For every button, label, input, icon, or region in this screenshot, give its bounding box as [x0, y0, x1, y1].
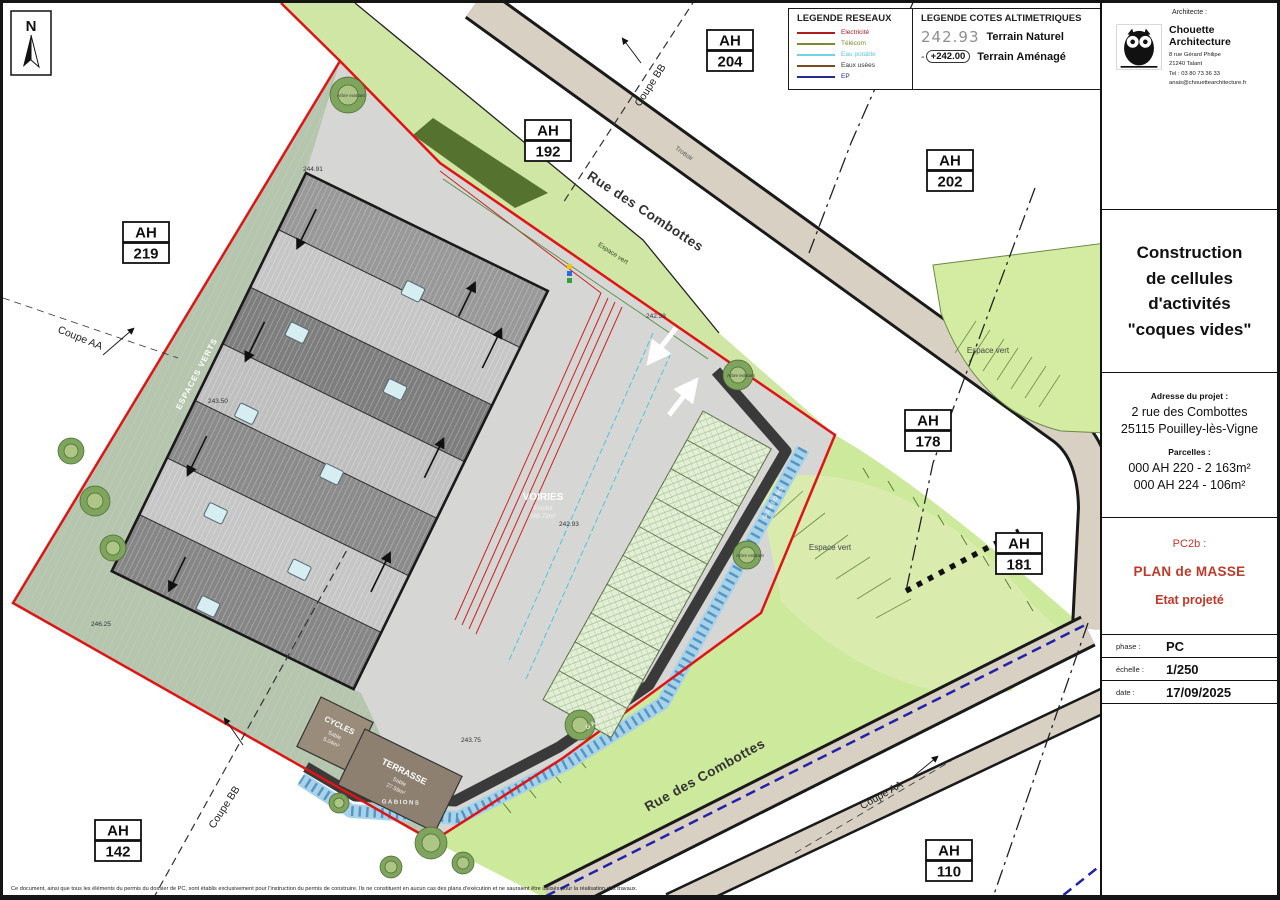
date-value: 17/09/2025 [1166, 685, 1231, 700]
arbre-label: Arbre existant [736, 553, 765, 558]
svg-text:181: 181 [1006, 557, 1031, 574]
parcel-label-ah110: AH 110 [926, 840, 972, 881]
electricite-label: Electricité [841, 29, 869, 36]
terrain-amenage-value: +242.00 [926, 50, 971, 63]
terrain-amenage-row: - +242.00 Terrain Aménagé [921, 50, 1095, 63]
project-title-line1: Construction [1128, 240, 1252, 266]
parcel1: 000 AH 220 - 2 163m² [1102, 460, 1277, 477]
project-title-line3: d'activités [1128, 291, 1252, 317]
terrain-naturel-value: 242.93 [921, 28, 980, 46]
arbre-label: Arbre existant [337, 93, 366, 98]
svg-text:219: 219 [133, 246, 158, 263]
service-connection-marks [567, 264, 572, 283]
svg-text:192: 192 [535, 144, 560, 161]
elevation-value: 243.75 [461, 737, 481, 744]
drawing-sheet: CYCLES Sable 5.04m² TERRASSE Sable 27.59… [0, 0, 1280, 900]
terrain-amenage-badge: - +242.00 [921, 50, 970, 63]
parcel-label-ah219: AH 219 [123, 222, 169, 263]
document-block: PC2b : PLAN de MASSE Etat projeté [1102, 518, 1277, 635]
ep-line-swatch [797, 76, 835, 78]
scale-row: échelle : 1/250 [1102, 658, 1277, 681]
terrain-naturel-label: Terrain Naturel [987, 31, 1064, 43]
parcels-heading: Parcelles : [1102, 447, 1277, 457]
elevation-value: 242.93 [559, 521, 579, 528]
svg-text:AH: AH [917, 413, 939, 430]
doc-title: PLAN de MASSE [1102, 564, 1277, 579]
architect-name: Chouette Architecture [1169, 24, 1269, 48]
date-label: date : [1102, 688, 1166, 697]
address-heading: Adresse du projet : [1102, 391, 1277, 401]
phase-label: phase : [1102, 642, 1166, 651]
eaux-usees-line-swatch [797, 65, 835, 67]
parcel-label-ah178: AH 178 [905, 410, 951, 451]
legend-row-telecom: Télécom [797, 38, 904, 49]
voiries-area-value: 585.72m² [530, 514, 555, 520]
architect-heading: Architecte : [1110, 9, 1269, 16]
svg-text:AH: AH [135, 225, 157, 242]
svg-text:AH: AH [719, 33, 741, 50]
title-block-empty [1102, 704, 1277, 895]
eaux-usees-label: Eaux usées [841, 62, 875, 69]
svg-text:178: 178 [915, 434, 940, 451]
architect-address2: 21240 Talant [1169, 60, 1269, 69]
svg-text:AH: AH [1008, 536, 1030, 553]
svg-text:110: 110 [937, 864, 961, 881]
parcel-label-ah204: AH 204 [707, 30, 753, 71]
electricite-line-swatch [797, 32, 835, 34]
project-title-line2: de cellules [1128, 266, 1252, 292]
svg-text:204: 204 [717, 54, 743, 71]
architect-phone: Tel : 03 80 73 36 33 [1169, 70, 1269, 79]
voiries-material: Enrobé [533, 506, 553, 512]
project-title: Construction de cellules d'activités "co… [1128, 240, 1252, 342]
project-address-block: Adresse du projet : 2 rue des Combottes … [1102, 373, 1277, 518]
project-address2: 25115 Pouilley-lès-Vigne [1102, 421, 1277, 438]
eau-potable-line-swatch [797, 54, 835, 56]
architect-email: anais@chouettearchitecture.fr [1169, 79, 1269, 88]
scale-label: échelle : [1102, 665, 1166, 674]
north-arrow: N [11, 11, 51, 75]
legend-row-electricite: Electricité [797, 27, 904, 38]
north-label: N [26, 18, 37, 35]
arbre-label: Arbre existant [727, 373, 756, 378]
parcel-label-ah202: AH 202 [927, 150, 973, 191]
telecom-line-swatch [797, 43, 835, 45]
espace-vert-label: Espace vert [809, 543, 852, 552]
ep-label: EP [841, 73, 850, 80]
phase-row: phase : PC [1102, 635, 1277, 658]
phase-value: PC [1166, 639, 1184, 654]
svg-text:142: 142 [105, 844, 130, 861]
parcel-label-ah142: AH 142 [95, 820, 141, 861]
legend-elevations-title: LEGENDE COTES ALTIMETRIQUES [921, 13, 1095, 24]
parcel2: 000 AH 224 - 106m² [1102, 477, 1277, 494]
svg-text:AH: AH [537, 123, 559, 140]
terrain-amenage-label: Terrain Aménagé [977, 51, 1066, 63]
footer-disclaimer: Ce document, ainsi que tous les éléments… [11, 886, 637, 892]
title-block: Architecte : Chouette Architecture 8 rue… [1100, 3, 1277, 895]
legend-elevations: LEGENDE COTES ALTIMETRIQUES 242.93 Terra… [912, 8, 1104, 90]
legend-networks-title: LEGENDE RESEAUX [797, 13, 904, 24]
legend-row-eaux-usees: Eaux usées [797, 60, 904, 71]
espace-vert-label: Espace vert [967, 346, 1010, 355]
legend-row-ep: EP [797, 71, 904, 82]
architect-address1: 8 rue Gérard Philipe [1169, 51, 1269, 60]
elevation-value: 242.38 [646, 313, 666, 320]
site-plan-drawing: CYCLES Sable 5.04m² TERRASSE Sable 27.59… [3, 3, 1106, 897]
parcel-label-ah192: AH 192 [525, 120, 571, 161]
telecom-label: Télécom [841, 40, 866, 47]
svg-text:AH: AH [107, 823, 129, 840]
terrain-naturel-row: 242.93 Terrain Naturel [921, 28, 1095, 46]
architect-block: Architecte : Chouette Architecture 8 rue… [1102, 3, 1277, 210]
voiries-label: VOIRIES [523, 492, 564, 503]
elevation-value: 244.91 [303, 166, 323, 173]
svg-text:AH: AH [938, 843, 960, 860]
elevation-value: 246.25 [91, 621, 111, 628]
parcel-label-ah181: AH 181 [996, 533, 1042, 574]
badge-leader: - [921, 51, 925, 63]
owl-logo [1116, 24, 1162, 70]
project-address1: 2 rue des Combottes [1102, 404, 1277, 421]
legend-row-eau-potable: Eau potable [797, 49, 904, 60]
doc-state: Etat projeté [1102, 593, 1277, 607]
elevation-value: 243.50 [208, 398, 228, 405]
legend-networks: LEGENDE RESEAUX Electricité Télécom Eau … [788, 8, 913, 90]
project-title-block: Construction de cellules d'activités "co… [1102, 210, 1277, 373]
svg-text:AH: AH [939, 153, 961, 170]
eau-potable-label: Eau potable [841, 51, 876, 58]
doc-code: PC2b : [1102, 538, 1277, 550]
scale-value: 1/250 [1166, 662, 1199, 677]
project-title-line4: "coques vides" [1128, 317, 1252, 343]
date-row: date : 17/09/2025 [1102, 681, 1277, 704]
svg-text:202: 202 [937, 174, 962, 191]
